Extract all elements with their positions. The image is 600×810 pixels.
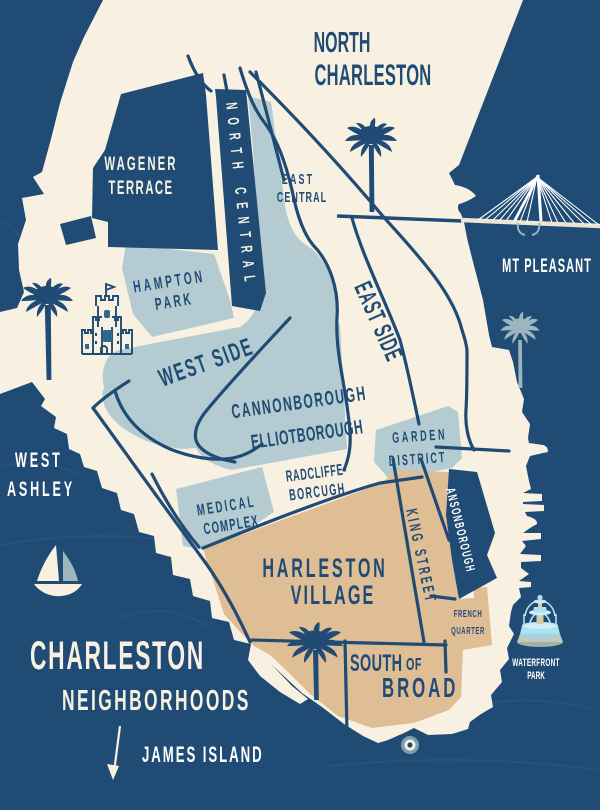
svg-text:CHARLESTON: CHARLESTON <box>30 633 205 677</box>
svg-text:EAST: EAST <box>282 171 314 188</box>
svg-text:WEST: WEST <box>15 448 63 472</box>
svg-text:CHARLESTON: CHARLESTON <box>314 59 431 92</box>
svg-text:ASHLEY: ASHLEY <box>7 477 75 501</box>
svg-text:MT PLEASANT: MT PLEASANT <box>502 256 592 277</box>
svg-text:FRENCH: FRENCH <box>454 609 483 620</box>
svg-text:HARLESTON: HARLESTON <box>262 553 387 583</box>
svg-text:CENTRAL: CENTRAL <box>277 189 328 206</box>
svg-text:VILLAGE: VILLAGE <box>291 580 376 610</box>
svg-text:TERRACE: TERRACE <box>108 178 173 199</box>
svg-text:WAGENER: WAGENER <box>104 154 177 175</box>
svg-text:NORTH: NORTH <box>314 26 371 58</box>
svg-text:BROAD: BROAD <box>382 672 458 704</box>
svg-text:QUARTER: QUARTER <box>451 626 485 637</box>
svg-text:NEIGHBORHOODS: NEIGHBORHOODS <box>62 685 251 718</box>
svg-text:WATERFRONT: WATERFRONT <box>512 656 559 668</box>
svg-text:PARK: PARK <box>527 669 545 681</box>
svg-text:JAMES ISLAND: JAMES ISLAND <box>142 743 264 767</box>
